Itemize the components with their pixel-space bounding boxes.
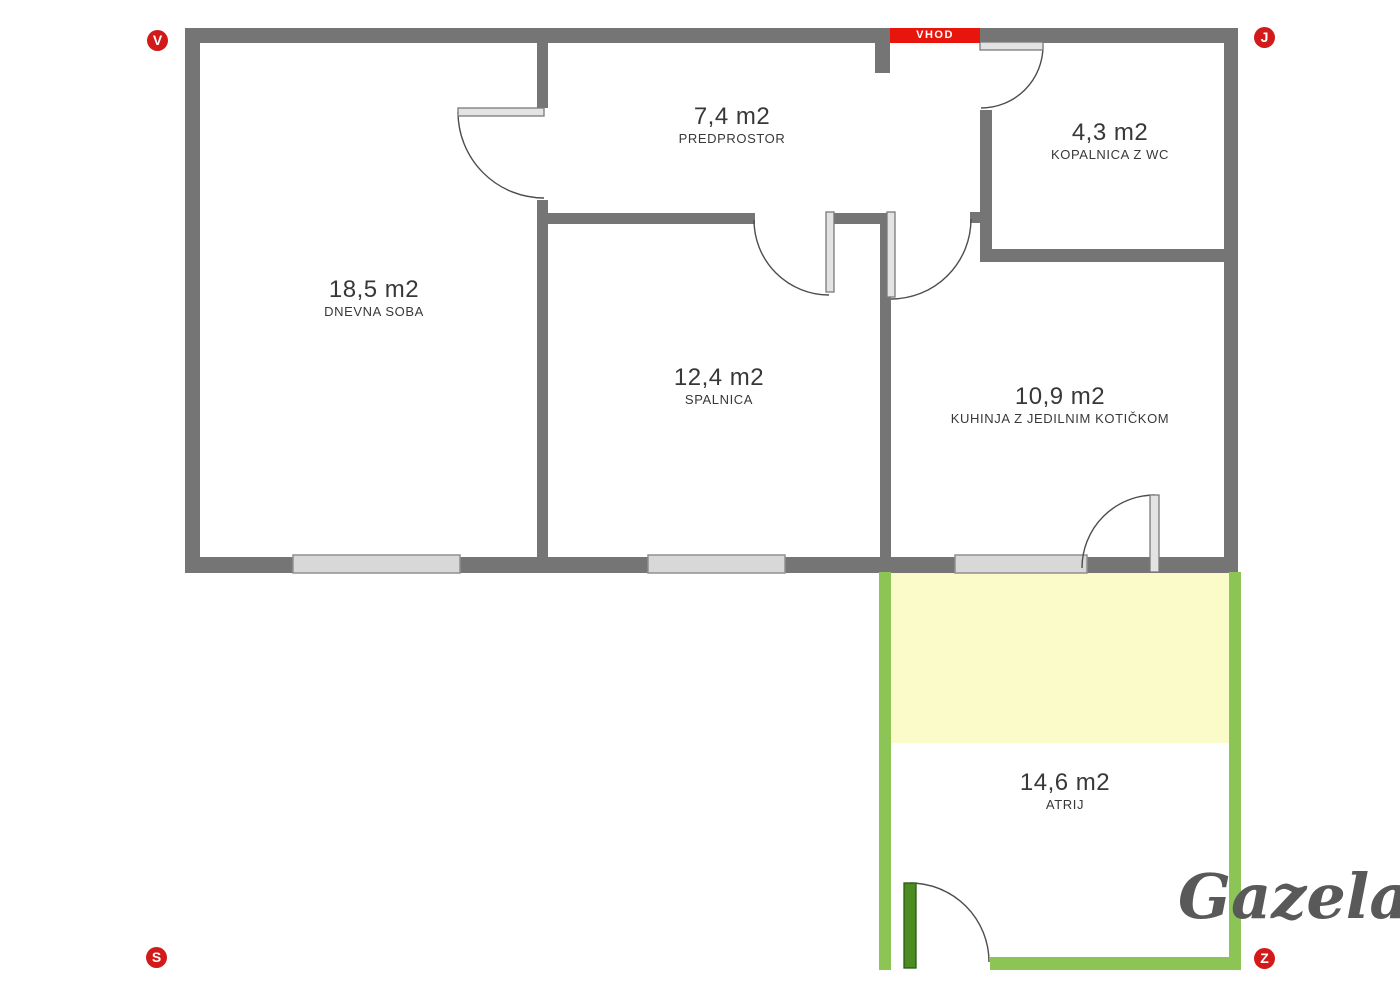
atrium-door-arc [910, 883, 989, 962]
windows [293, 555, 1087, 573]
wall-top-east [980, 28, 1238, 43]
wall-bathroom-south [992, 249, 1225, 262]
window-bedroom [648, 555, 785, 573]
wall-livingroom-divider-upper [537, 43, 548, 108]
floor-plan-canvas: VHOD 18,5 m2 DNEVNA SOBA 7,4 m2 PREDPROS… [0, 0, 1400, 1000]
bedroom-door-leaf [826, 212, 834, 292]
wall-bedroom-top-east [832, 213, 891, 224]
wall-livingroom-divider-lower [537, 200, 548, 557]
atrium-wall-west [879, 572, 891, 970]
door-leaves [458, 42, 1159, 968]
wall-bathroom-west [980, 110, 992, 262]
compass-badge-s: S [146, 947, 167, 968]
livingroom-door-leaf [458, 108, 544, 116]
wall-bedroom-top-west [548, 213, 755, 224]
kitchen-door-arc [891, 219, 971, 299]
compass-badge-z: Z [1254, 948, 1275, 969]
wall-west [185, 28, 200, 573]
kitchen-door-leaf [887, 212, 895, 297]
wall-east [1224, 28, 1238, 573]
entrance-door-arc [981, 46, 1043, 108]
atrium-wall-south [990, 957, 1241, 970]
entrance-label: VHOD [890, 28, 980, 43]
window-livingroom [293, 555, 460, 573]
door-arcs [458, 46, 1155, 962]
gazela-watermark: Gazela [1178, 862, 1398, 932]
entrance-door-leaf [980, 42, 1043, 50]
compass-badge-v: V [147, 30, 168, 51]
compass-badge-j: J [1254, 27, 1275, 48]
window-kitchen [955, 555, 1087, 573]
kitchen-atrium-door-leaf [1150, 495, 1159, 572]
atrium-door-leaf [904, 883, 916, 968]
wall-entrance-stub [875, 43, 890, 73]
atrium-highlight-area [891, 572, 1229, 743]
walls-gray [185, 28, 1238, 573]
wall-top-west [185, 28, 890, 43]
atrium-region [891, 572, 1229, 743]
floor-plan-drawing [0, 0, 1400, 1000]
bedroom-door-arc [754, 220, 829, 295]
livingroom-door-arc [458, 112, 544, 198]
